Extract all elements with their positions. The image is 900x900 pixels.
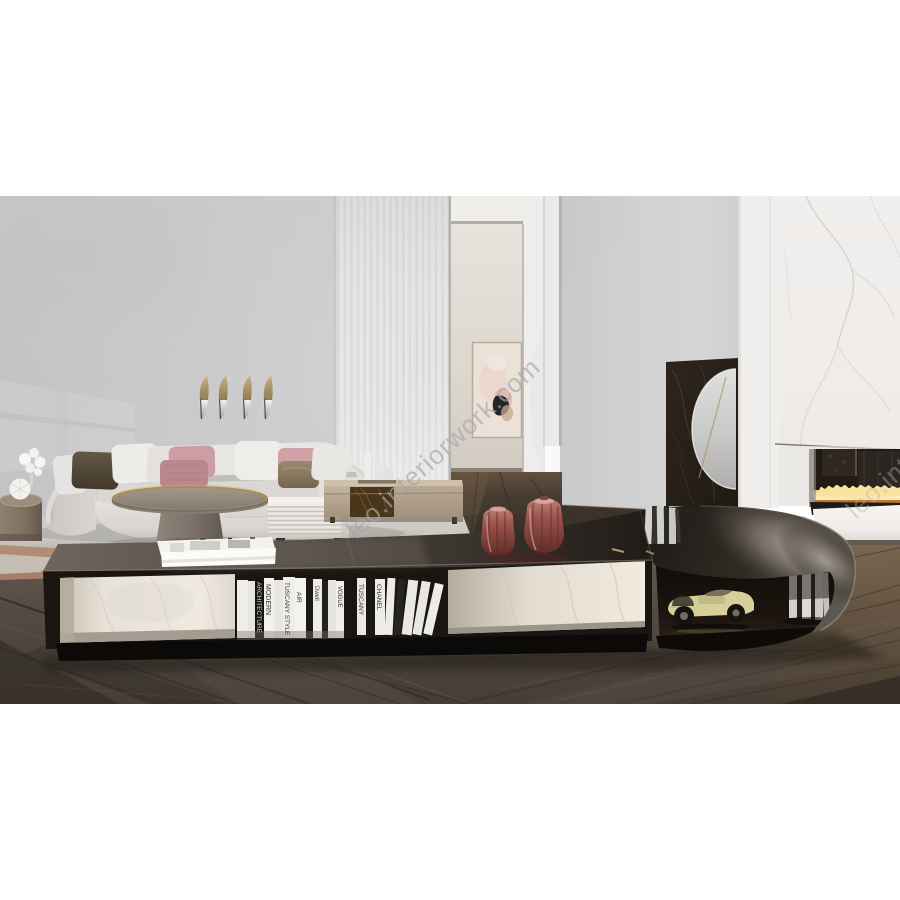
svg-text:TUSCANY STYLE: TUSCANY STYLE [283, 582, 290, 636]
svg-text:Dwell: Dwell [313, 586, 319, 601]
svg-text:ARCHITECTURE: ARCHITECTURE [255, 582, 262, 634]
svg-text:AIR: AIR [295, 592, 302, 603]
svg-text:MODERN: MODERN [264, 584, 271, 615]
svg-text:CHANEL: CHANEL [375, 584, 382, 611]
svg-text:TUSCANY: TUSCANY [357, 584, 364, 616]
svg-text:VOGUE: VOGUE [336, 586, 342, 608]
